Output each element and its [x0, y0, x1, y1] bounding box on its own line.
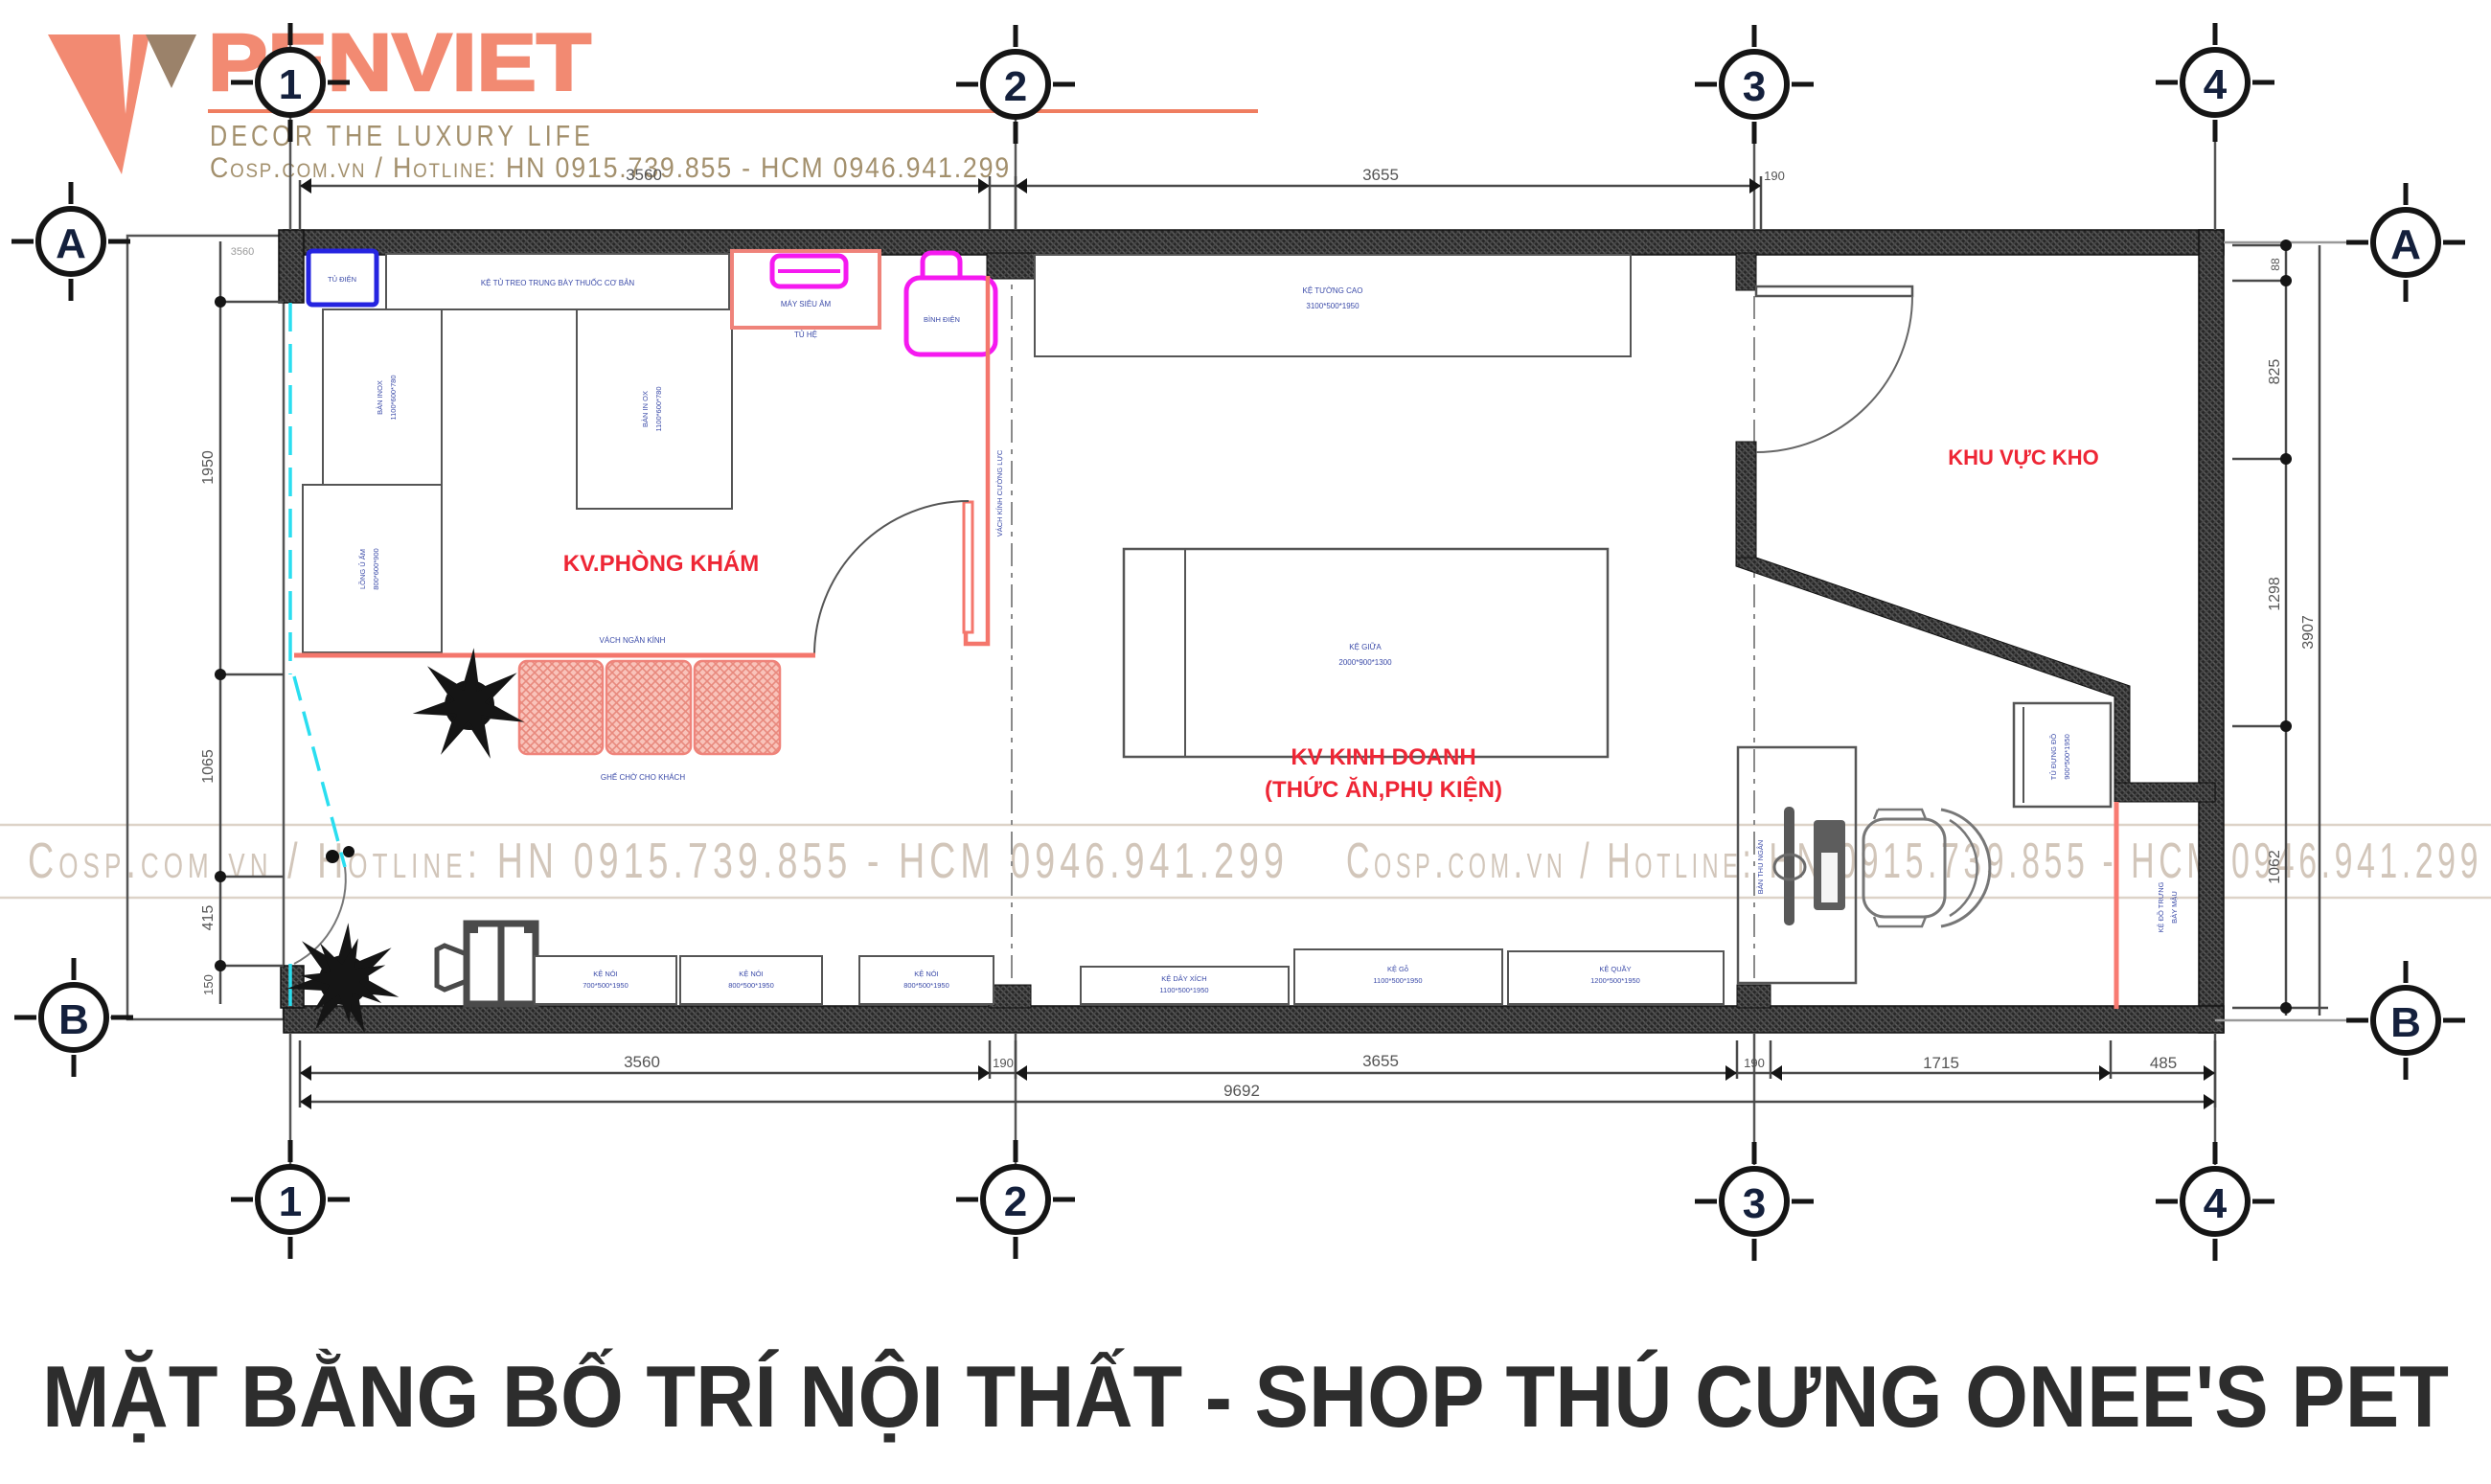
svg-text:(THỨC ĂN,PHỤ KIỆN): (THỨC ĂN,PHỤ KIỆN)	[1265, 776, 1502, 803]
svg-text:BÀN THU NGÂN: BÀN THU NGÂN	[1756, 840, 1765, 895]
svg-text:DECOR THE LUXURY LIFE: DECOR THE LUXURY LIFE	[210, 119, 594, 152]
svg-text:1715: 1715	[1923, 1054, 1959, 1072]
svg-text:3907: 3907	[2300, 615, 2317, 650]
svg-text:MẶT BẰNG BỐ TRÍ NỘI THẤT - SH: MẶT BẰNG BỐ TRÍ NỘI THẤT - SHOP THÚ CƯNG…	[42, 1348, 2449, 1446]
svg-text:3560: 3560	[231, 246, 254, 258]
svg-text:3655: 3655	[1362, 166, 1399, 184]
svg-text:1200*500*1950: 1200*500*1950	[1590, 976, 1640, 985]
svg-text:825: 825	[2267, 359, 2283, 385]
svg-text:Cosp.com.vn / Hotline: HN 0915: Cosp.com.vn / Hotline: HN 0915.739.855 -…	[210, 152, 1011, 184]
svg-text:Cosp.com.vn / Hotline: HN 0915: Cosp.com.vn / Hotline: HN 0915.739.855 -…	[1346, 833, 2482, 889]
svg-text:190: 190	[993, 1056, 1014, 1070]
svg-text:KỆ ĐỒ TRƯNG: KỆ ĐỒ TRƯNG	[2156, 881, 2165, 932]
svg-text:3100*500*1950: 3100*500*1950	[1306, 302, 1360, 310]
svg-text:190: 190	[1744, 1056, 1765, 1070]
svg-text:1100*600*780: 1100*600*780	[654, 387, 663, 432]
svg-text:BÀN INOX: BÀN INOX	[376, 380, 384, 415]
svg-text:KỆ NÓI: KỆ NÓI	[914, 970, 938, 978]
svg-text:485: 485	[2150, 1054, 2177, 1072]
svg-text:KV KINH DOANH: KV KINH DOANH	[1291, 744, 1475, 770]
svg-text:1100*600*780: 1100*600*780	[389, 376, 398, 421]
svg-text:4: 4	[2204, 1180, 2228, 1227]
svg-text:1950: 1950	[200, 450, 217, 485]
svg-text:KV.PHÒNG KHÁM: KV.PHÒNG KHÁM	[563, 550, 759, 577]
svg-text:3: 3	[1743, 63, 1766, 110]
svg-text:4: 4	[2204, 61, 2228, 108]
svg-text:LỒNG Ủ ẤM: LỒNG Ủ ẤM	[357, 549, 367, 589]
svg-text:GHẾ CHỜ CHO KHÁCH: GHẾ CHỜ CHO KHÁCH	[601, 772, 685, 782]
svg-text:BÌNH ĐIỆN: BÌNH ĐIỆN	[924, 315, 960, 324]
svg-text:KHU VỰC KHO: KHU VỰC KHO	[1948, 445, 2099, 469]
svg-text:2: 2	[1004, 1178, 1027, 1225]
svg-text:TỦ ĐỰNG ĐỒ: TỦ ĐỰNG ĐỒ	[2048, 734, 2058, 781]
svg-text:KỆ TỦ TREO TRUNG BÀY THUỐC CƠ: KỆ TỦ TREO TRUNG BÀY THUỐC CƠ BẢN	[481, 278, 635, 287]
svg-text:KỆ Gỗ: KỆ Gỗ	[1387, 965, 1408, 973]
svg-text:1: 1	[279, 1178, 302, 1225]
svg-text:3560: 3560	[626, 166, 662, 184]
svg-text:1100*500*1950: 1100*500*1950	[1373, 976, 1422, 985]
svg-text:800*500*1950: 800*500*1950	[903, 981, 949, 990]
svg-text:KỆ TƯỜNG CAO: KỆ TƯỜNG CAO	[1303, 286, 1363, 295]
svg-text:1: 1	[279, 61, 302, 108]
svg-text:B: B	[2390, 999, 2421, 1046]
svg-text:B: B	[58, 996, 89, 1043]
svg-text:BÀY MẬU: BÀY MẬU	[2170, 891, 2179, 924]
svg-text:VÁCH KÍNH CƯỜNG LỰC: VÁCH KÍNH CƯỜNG LỰC	[995, 449, 1004, 537]
svg-text:415: 415	[200, 905, 217, 931]
svg-text:1298: 1298	[2267, 577, 2283, 611]
svg-text:3655: 3655	[1362, 1052, 1399, 1070]
svg-text:KỆ GIỮA: KỆ GIỮA	[1349, 643, 1382, 651]
svg-text:9692: 9692	[1223, 1082, 1260, 1100]
svg-text:1100*500*1950: 1100*500*1950	[1159, 986, 1208, 994]
svg-text:1065: 1065	[200, 749, 217, 784]
svg-text:3560: 3560	[624, 1053, 660, 1071]
svg-text:KỆ DÂY XÍCH: KỆ DÂY XÍCH	[1161, 974, 1206, 983]
svg-text:VÁCH NGĂN KÍNH: VÁCH NGĂN KÍNH	[600, 636, 666, 645]
svg-text:KỆ NÓI: KỆ NÓI	[739, 970, 763, 978]
svg-text:700*500*1950: 700*500*1950	[583, 981, 628, 990]
svg-text:2000*900*1300: 2000*900*1300	[1338, 658, 1392, 667]
svg-text:KỆ QUẦY: KỆ QUẦY	[1599, 964, 1631, 973]
svg-text:800*600*900: 800*600*900	[372, 548, 380, 589]
svg-text:A: A	[56, 220, 86, 267]
svg-text:TỦ ĐIỆN: TỦ ĐIỆN	[328, 275, 356, 284]
svg-text:TỦ HỆ: TỦ HỆ	[794, 331, 817, 339]
svg-text:190: 190	[1764, 169, 1785, 183]
svg-text:MÁY SIÊU ÂM: MÁY SIÊU ÂM	[781, 300, 832, 308]
svg-text:88: 88	[2269, 258, 2282, 271]
svg-text:800*500*1950: 800*500*1950	[728, 981, 774, 990]
svg-text:150: 150	[201, 974, 216, 995]
svg-text:3: 3	[1743, 1180, 1766, 1227]
svg-text:2: 2	[1004, 63, 1027, 110]
svg-text:900*500*1950: 900*500*1950	[2063, 734, 2071, 780]
svg-text:KỆ NÓI: KỆ NÓI	[593, 970, 617, 978]
svg-text:1062: 1062	[2267, 850, 2283, 884]
svg-text:BÀN IN OX: BÀN IN OX	[641, 391, 650, 427]
svg-text:A: A	[2390, 221, 2421, 268]
